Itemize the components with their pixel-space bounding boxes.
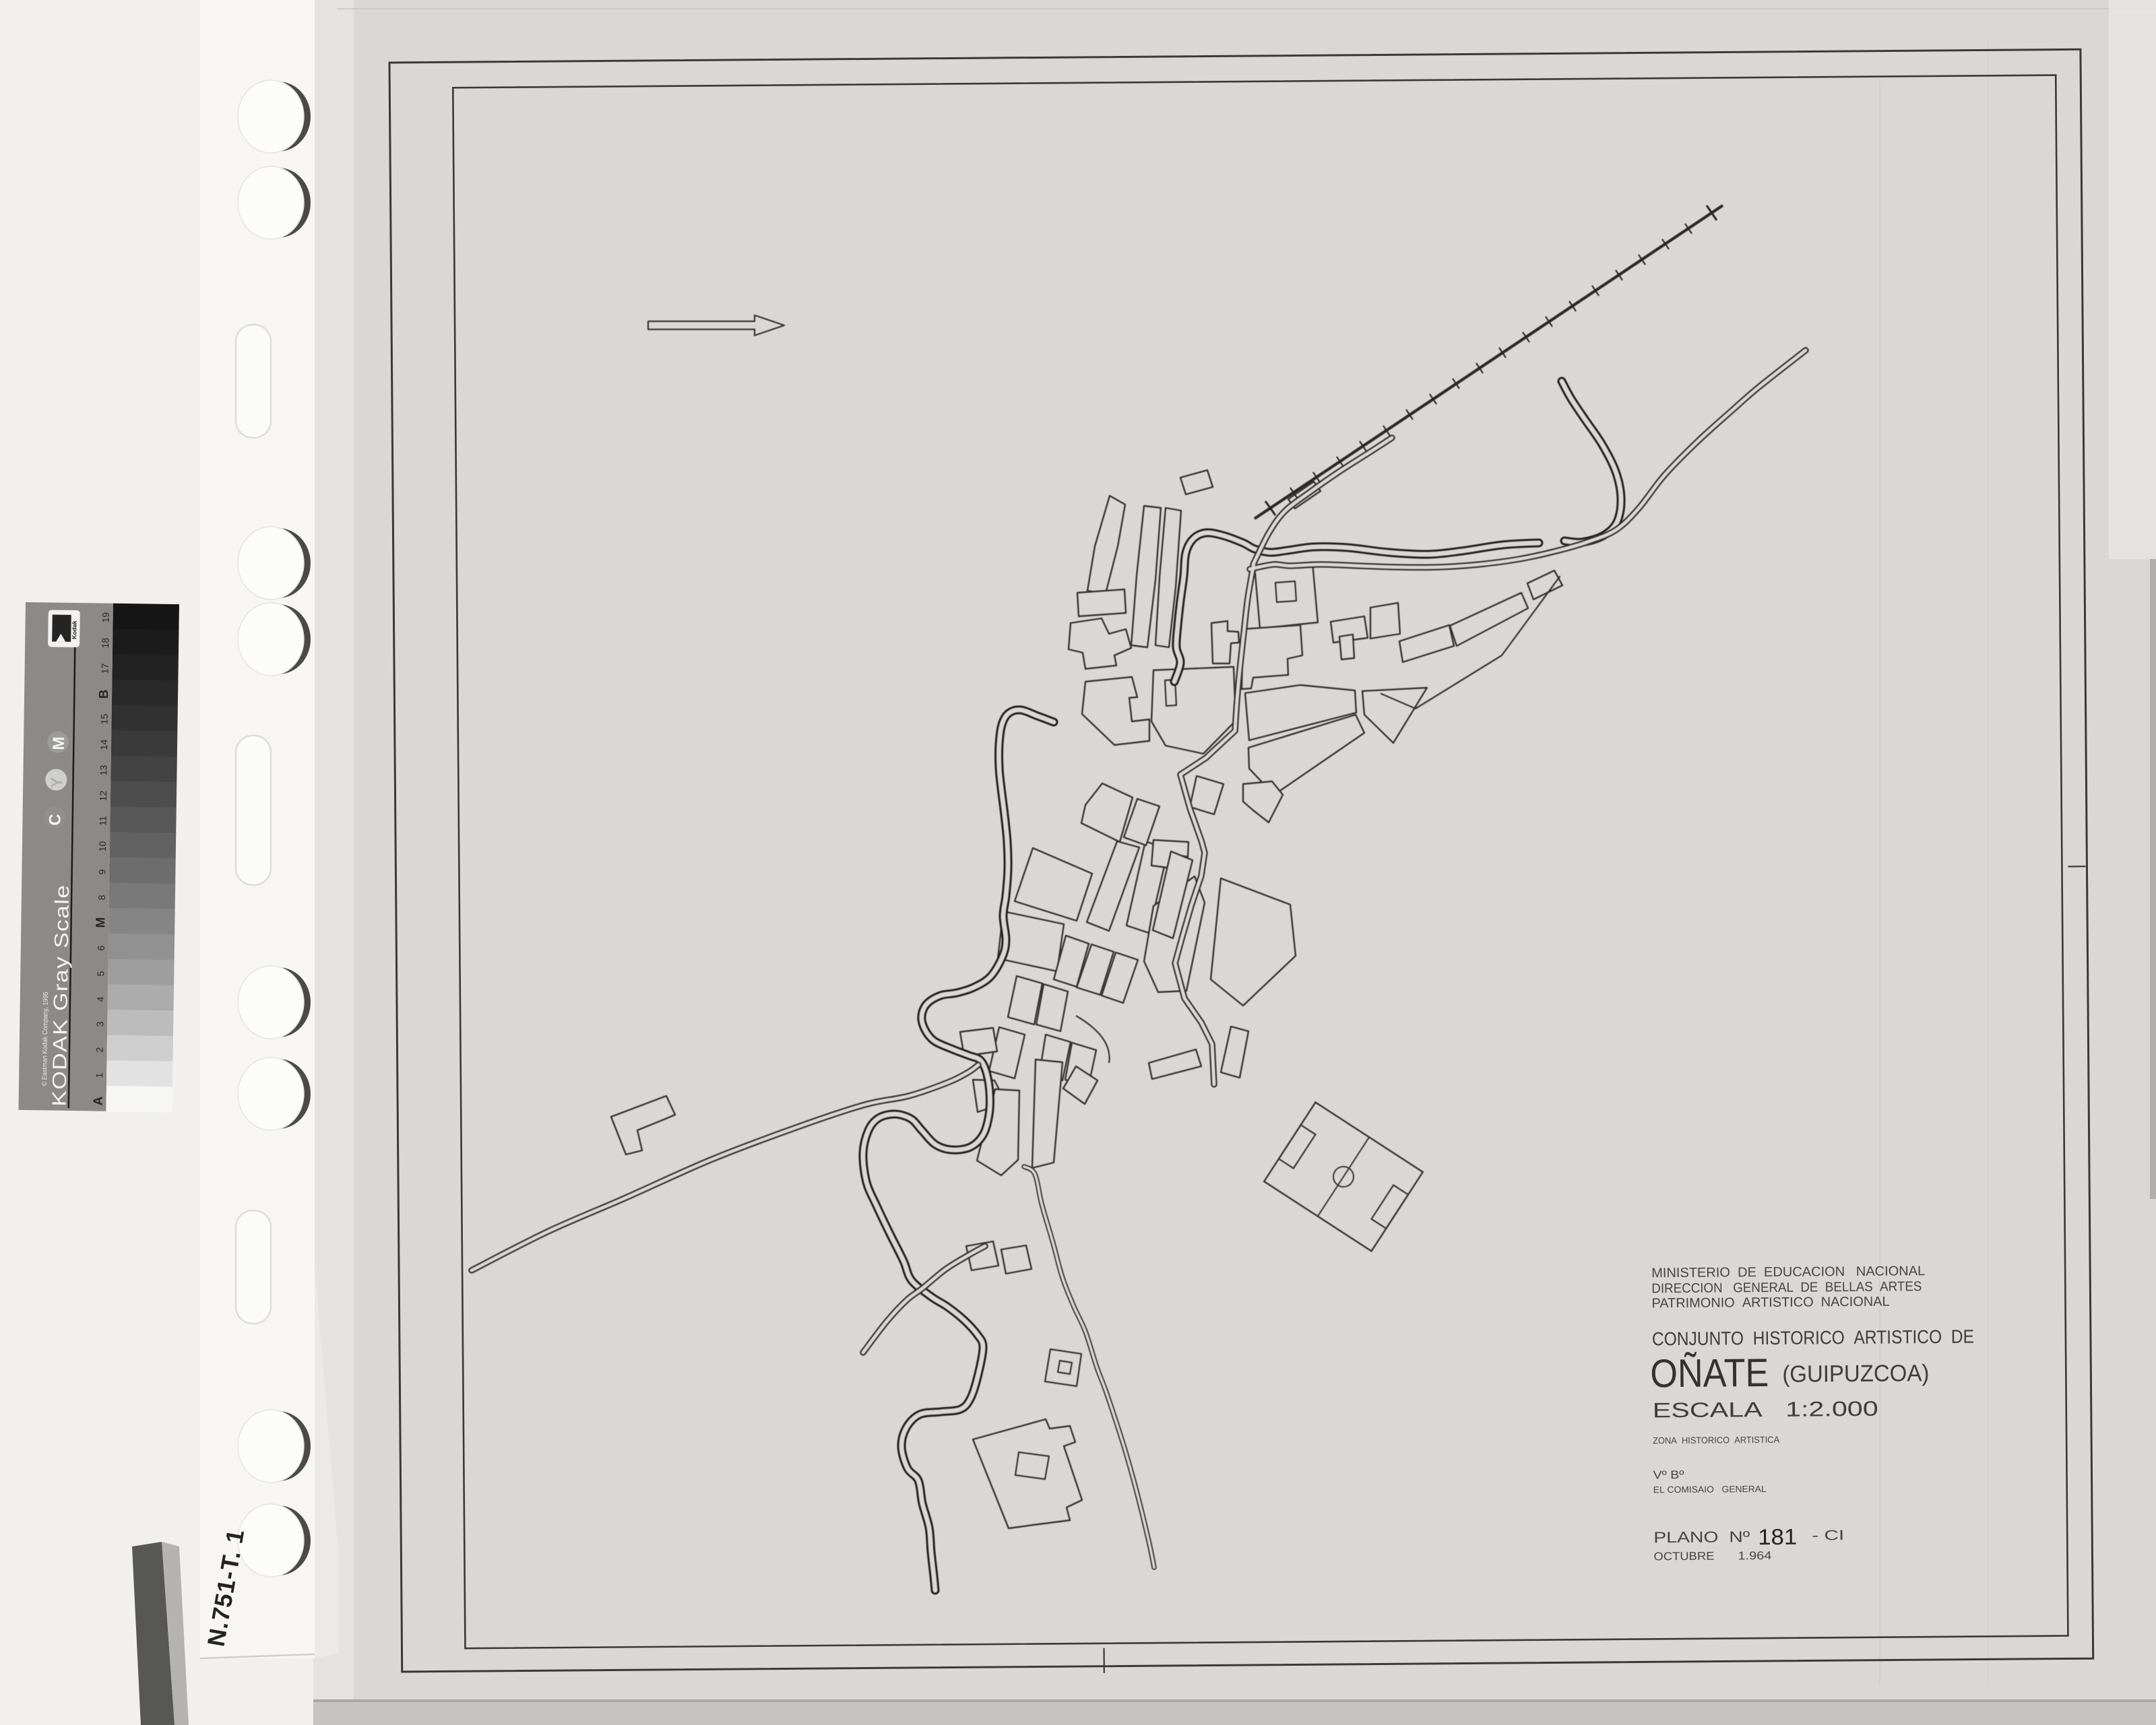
svg-text:MINISTERIO DE EDUCACION NA: MINISTERIO DE EDUCACION NACIONAL bbox=[1651, 1264, 1925, 1280]
svg-text:14: 14 bbox=[98, 740, 109, 750]
svg-text:M: M bbox=[94, 917, 108, 928]
svg-text:© Eastman Kodak Company, 1995: © Eastman Kodak Company, 1995 bbox=[41, 991, 50, 1086]
svg-text:C: C bbox=[46, 814, 64, 826]
svg-text:3: 3 bbox=[94, 1021, 105, 1027]
svg-text:Y: Y bbox=[48, 777, 66, 787]
svg-text:12: 12 bbox=[98, 790, 108, 801]
svg-text:M: M bbox=[50, 736, 68, 750]
svg-text:11: 11 bbox=[97, 816, 108, 826]
svg-text:18: 18 bbox=[100, 638, 110, 649]
svg-text:181: 181 bbox=[1758, 1524, 1797, 1549]
svg-text:DIRECCION GENERAL DE BELLA: DIRECCION GENERAL DE BELLAS ARTES bbox=[1651, 1279, 1922, 1296]
svg-text:EL COMISAIO GENERAL: EL COMISAIO GENERAL bbox=[1653, 1484, 1767, 1495]
svg-text:17: 17 bbox=[100, 663, 110, 674]
svg-text:A: A bbox=[92, 1096, 106, 1105]
svg-text:(GUIPUZCOA): (GUIPUZCOA) bbox=[1782, 1360, 1929, 1388]
svg-text:8: 8 bbox=[96, 894, 107, 900]
svg-text:2: 2 bbox=[94, 1047, 105, 1052]
svg-text:1.964: 1.964 bbox=[1738, 1549, 1771, 1562]
svg-text:CONJUNTO HISTORICO ARTISTICO: CONJUNTO HISTORICO ARTISTICO DE bbox=[1652, 1326, 1974, 1350]
svg-text:Vº Bº: Vº Bº bbox=[1653, 1468, 1684, 1481]
svg-text:ZONA HISTORICO ARTISTICA: ZONA HISTORICO ARTISTICA bbox=[1653, 1435, 1779, 1445]
svg-text:PLANO Nº: PLANO Nº bbox=[1653, 1528, 1750, 1546]
svg-text:10: 10 bbox=[97, 841, 108, 851]
svg-text:15: 15 bbox=[98, 714, 109, 725]
svg-text:5: 5 bbox=[95, 971, 106, 976]
svg-text:OCTUBRE: OCTUBRE bbox=[1653, 1550, 1714, 1563]
svg-text:KODAK Gray Scale: KODAK Gray Scale bbox=[49, 884, 74, 1107]
svg-text:13: 13 bbox=[98, 765, 108, 776]
svg-text:19: 19 bbox=[100, 612, 111, 623]
svg-text:- CI: - CI bbox=[1812, 1528, 1844, 1543]
svg-text:OÑATE: OÑATE bbox=[1650, 1350, 1769, 1396]
svg-text:Kodak: Kodak bbox=[71, 620, 77, 639]
svg-text:ESCALA 1:2.000: ESCALA 1:2.000 bbox=[1653, 1397, 1878, 1423]
svg-text:B: B bbox=[97, 690, 111, 699]
svg-text:4: 4 bbox=[95, 996, 106, 1002]
svg-text:9: 9 bbox=[96, 869, 107, 874]
svg-text:1: 1 bbox=[94, 1072, 104, 1078]
svg-text:6: 6 bbox=[96, 945, 106, 950]
svg-text:PATRIMONIO ARTISTICO NACIONA: PATRIMONIO ARTISTICO NACIONAL bbox=[1651, 1295, 1889, 1311]
